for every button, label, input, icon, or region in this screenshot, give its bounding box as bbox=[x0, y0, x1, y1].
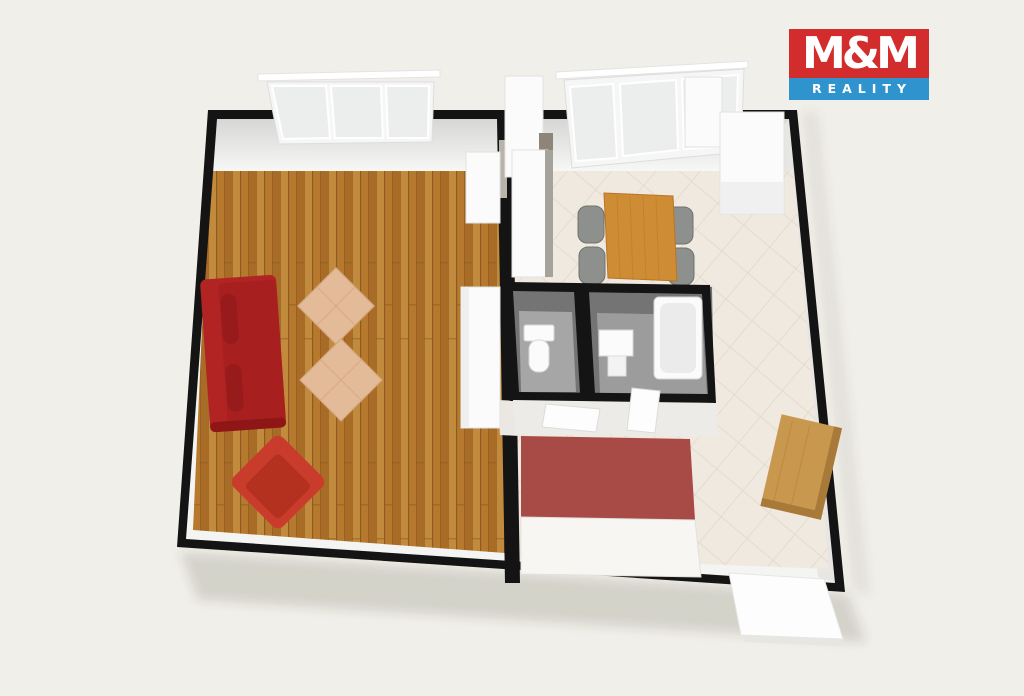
logo-title: M&M bbox=[802, 32, 916, 76]
floorplan-3d-render bbox=[0, 0, 1024, 696]
sofa bbox=[200, 275, 286, 433]
fridge-top bbox=[685, 77, 722, 147]
kitchen-counter bbox=[512, 150, 548, 277]
dining-table bbox=[604, 193, 677, 281]
sink bbox=[599, 330, 633, 356]
window-pane bbox=[272, 86, 330, 139]
sink-pedestal bbox=[608, 356, 626, 376]
bed-linen bbox=[521, 517, 701, 577]
wc-door bbox=[542, 404, 600, 432]
window-sill bbox=[258, 70, 440, 81]
counter-edge bbox=[545, 150, 553, 277]
window-pane bbox=[620, 80, 678, 156]
window-pane bbox=[570, 84, 617, 161]
toilet-bowl bbox=[529, 340, 549, 372]
bathroom-door bbox=[627, 388, 660, 433]
bed-mattress bbox=[521, 436, 695, 520]
entrance bbox=[729, 573, 843, 646]
dining-set bbox=[578, 193, 694, 285]
sideboard-face bbox=[461, 287, 469, 428]
tall-cabinet-front bbox=[721, 182, 783, 213]
bathtub-basin bbox=[660, 303, 696, 373]
logo-mark: M&M bbox=[789, 29, 929, 78]
toilet-tank bbox=[524, 325, 554, 341]
window-pane bbox=[331, 86, 383, 138]
cabinet-white bbox=[466, 152, 500, 223]
window-pane bbox=[386, 86, 429, 138]
dining-chair bbox=[578, 206, 604, 243]
logo-subtitle: REALITY bbox=[812, 83, 912, 96]
living-room-window bbox=[258, 70, 440, 144]
mm-reality-logo: M&M REALITY bbox=[789, 29, 929, 100]
sofa-cushion bbox=[225, 363, 244, 412]
dining-chair bbox=[579, 247, 605, 284]
floorplan-page: M&M REALITY bbox=[0, 0, 1024, 696]
logo-banner: REALITY bbox=[789, 78, 929, 100]
bathroom-core bbox=[504, 282, 716, 403]
